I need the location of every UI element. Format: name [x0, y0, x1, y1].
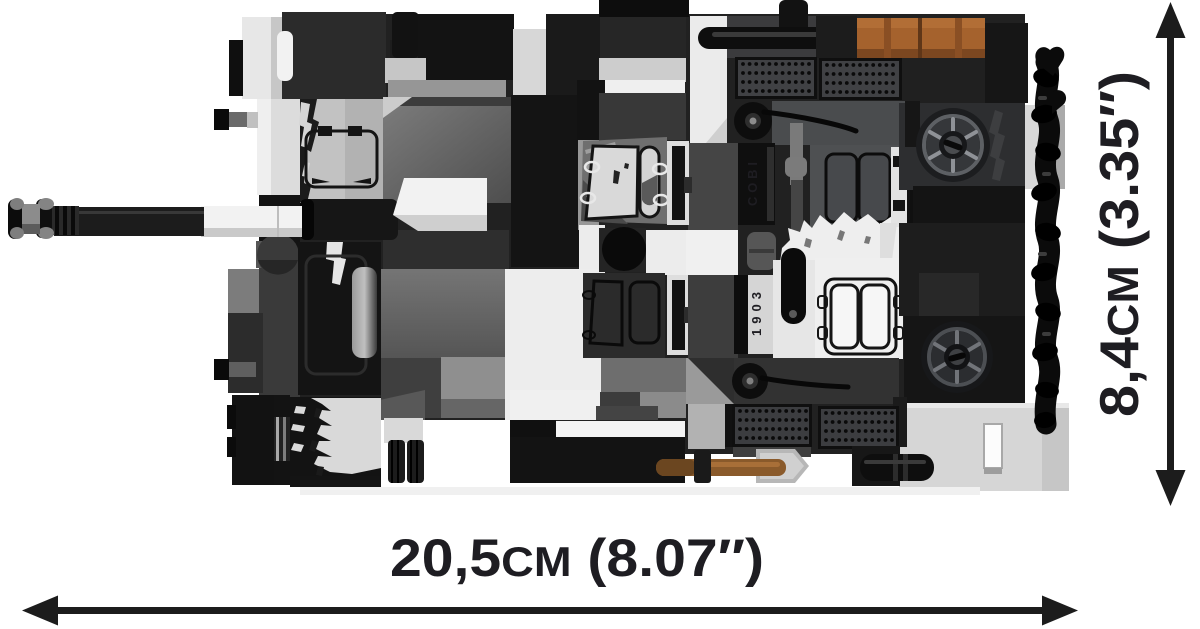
svg-text:8,4CM (3.35″): 8,4CM (3.35″) — [1088, 71, 1150, 417]
svg-text:20,5CM (8.07″): 20,5CM (8.07″) — [390, 529, 764, 588]
